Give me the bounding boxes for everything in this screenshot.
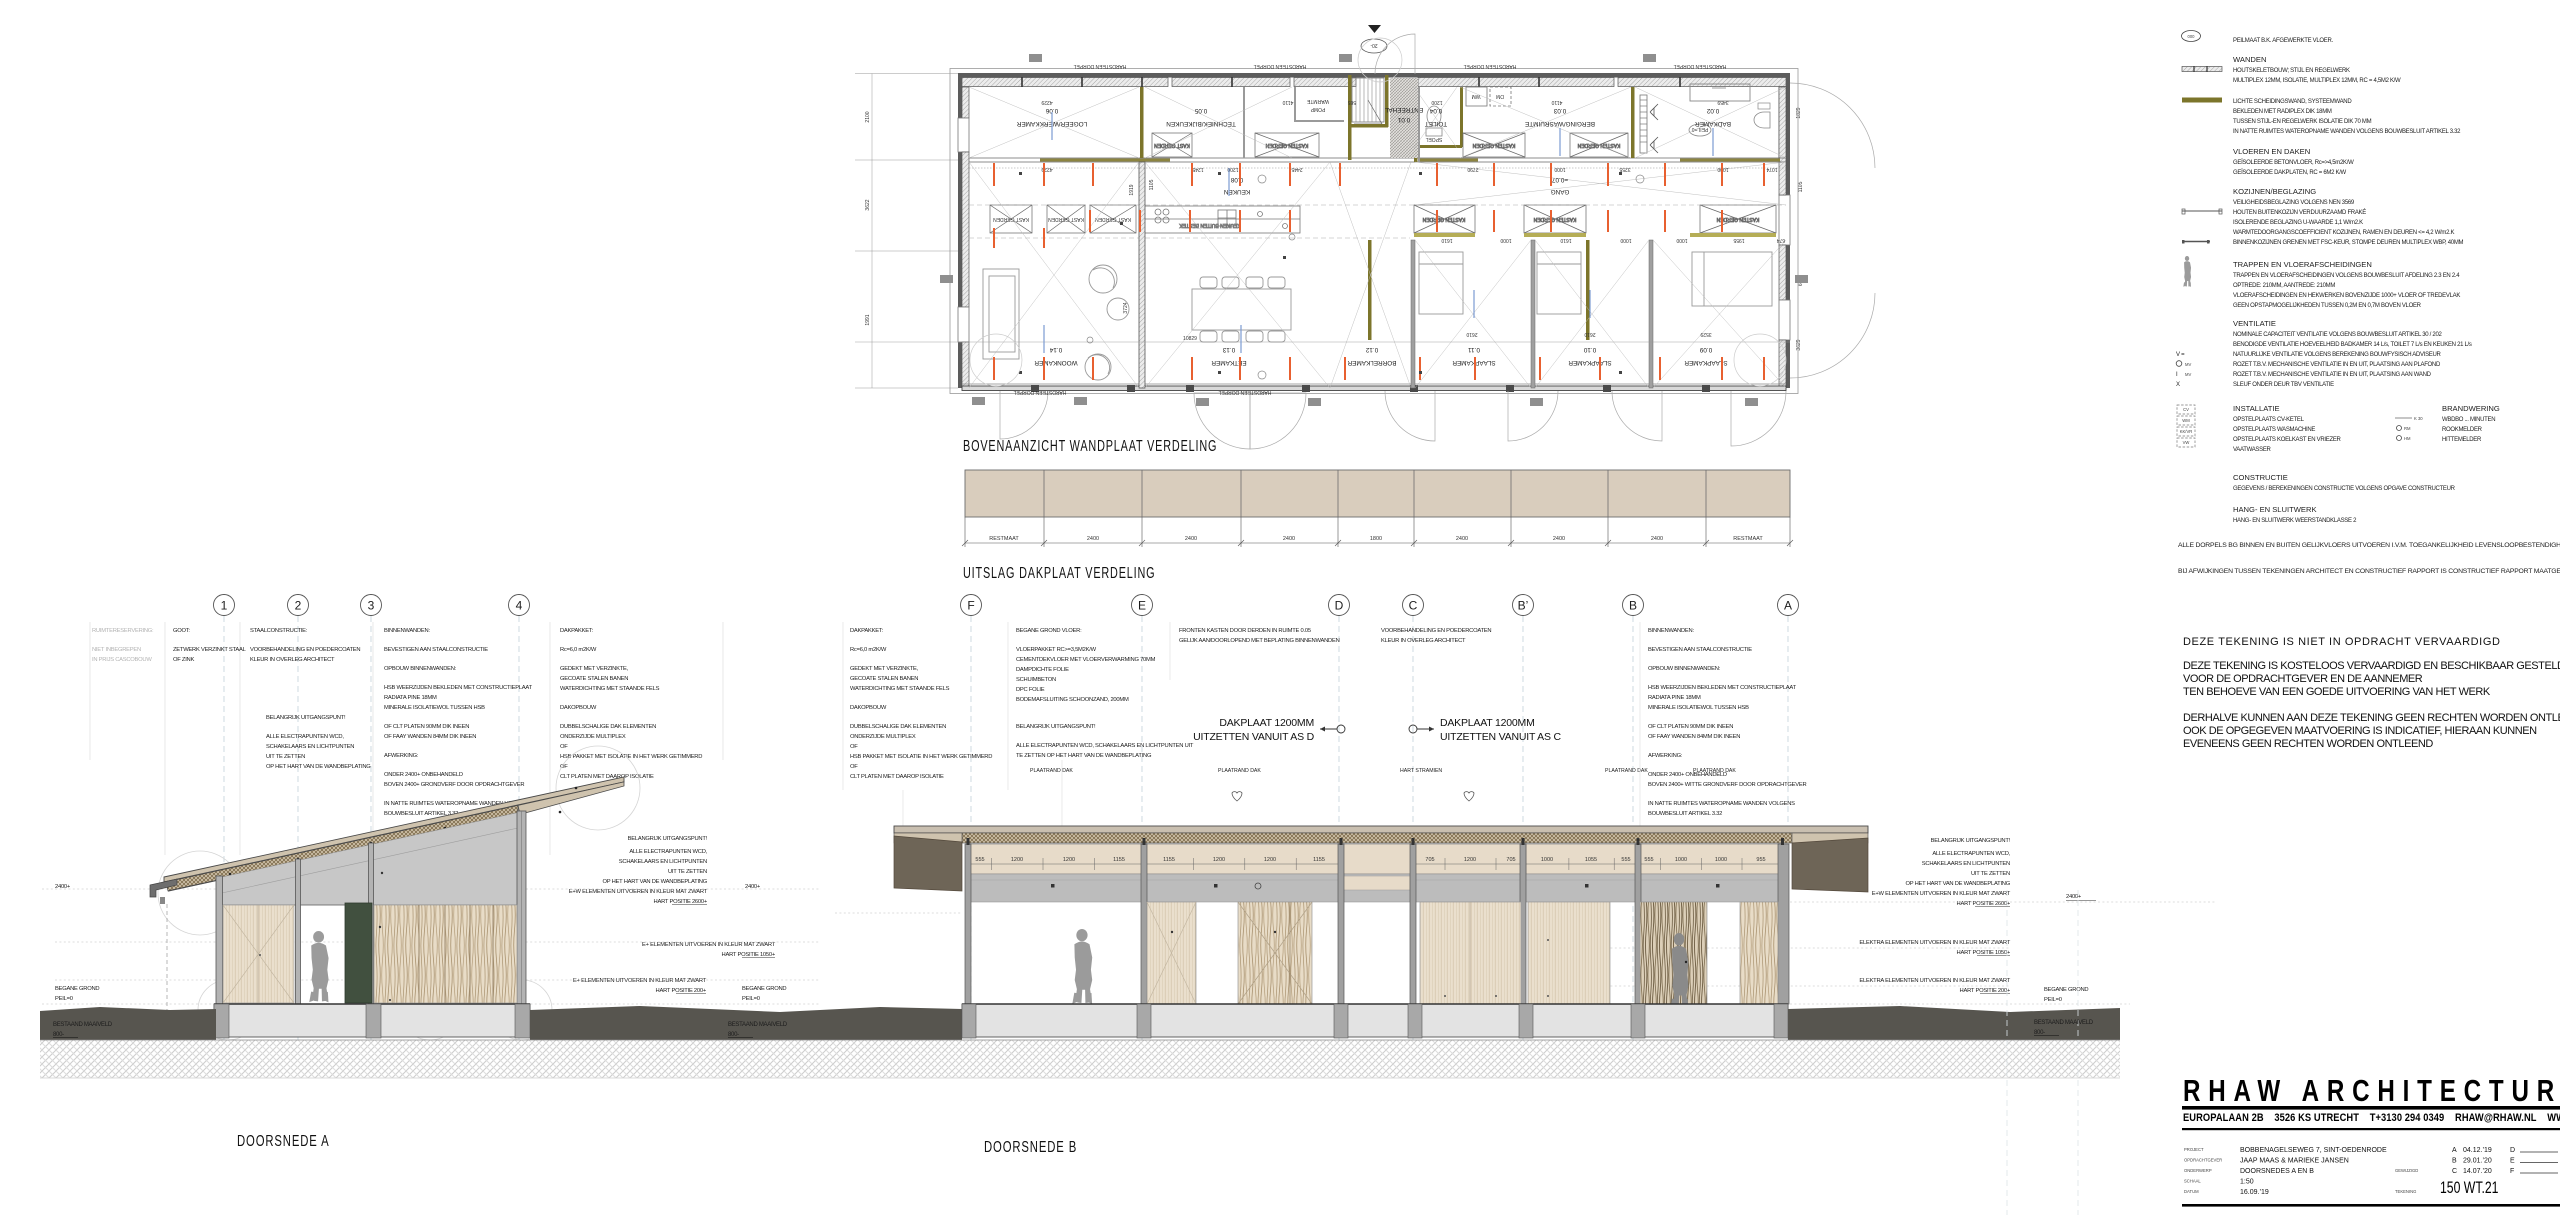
svg-text:GEGEVENS / BEREKENINGEN CONSTR: GEGEVENS / BEREKENINGEN CONSTRUCTIE VOLG…	[2233, 486, 2456, 492]
svg-text:GANG: GANG	[1551, 188, 1570, 195]
svg-text:OPTREDE: 210MM, AANTREDE: 210M: OPTREDE: 210MM, AANTREDE: 210MM	[2233, 283, 2335, 289]
svg-text:DPC FOLIE: DPC FOLIE	[1016, 687, 1045, 693]
svg-text:DUBBELSCHALIGE DAK ELEMENTEN: DUBBELSCHALIGE DAK ELEMENTEN	[560, 724, 656, 730]
svg-text:EUROPALAAN 2B 3526 KS UTREC: EUROPALAAN 2B 3526 KS UTRECHT T+3130 294…	[2183, 1113, 2560, 1125]
svg-text:0.05: 0.05	[1194, 107, 1207, 114]
svg-text:1200: 1200	[1063, 857, 1075, 863]
svg-text:04.12.’19: 04.12.’19	[2463, 1147, 2492, 1154]
svg-text:VW: VW	[2183, 440, 2190, 445]
svg-text:BORRELKAMER: BORRELKAMER	[1347, 359, 1396, 366]
svg-text:705: 705	[1425, 857, 1434, 863]
svg-text:2: 2	[295, 599, 302, 613]
svg-text:CEMENTDEKVLOER MET VLOERVERWAR: CEMENTDEKVLOER MET VLOERVERWARMING 70MM	[1016, 657, 1156, 663]
svg-text:HOUTSKELETBOUW; STIJL EN REGEL: HOUTSKELETBOUW; STIJL EN REGELWERK	[2233, 68, 2350, 74]
svg-text:2400: 2400	[1651, 536, 1663, 542]
svg-text:OP HET HART VAN DE WANDBEPLATI: OP HET HART VAN DE WANDBEPLATING	[1905, 881, 2010, 887]
svg-text:BEVESTIGEN AAN STAALCONSTRUCTI: BEVESTIGEN AAN STAALCONSTRUCTIE	[384, 647, 488, 653]
svg-text:16.09.’19: 16.09.’19	[2240, 1189, 2269, 1196]
svg-text:1155: 1155	[1313, 857, 1325, 863]
svg-text:1000: 1000	[1554, 166, 1565, 172]
svg-text:BELANGRIJK UITGANGSPUNT!: BELANGRIJK UITGANGSPUNT!	[628, 836, 708, 842]
svg-text:OF: OF	[850, 744, 858, 750]
svg-text:0.04: 0.04	[1429, 107, 1442, 114]
svg-text:OF ZINK: OF ZINK	[173, 657, 194, 663]
svg-text:PEIL=0: PEIL=0	[742, 996, 760, 1002]
svg-text:X: X	[2176, 382, 2180, 388]
svg-text:4110: 4110	[1282, 99, 1293, 105]
svg-text:DM: DM	[1496, 93, 1504, 99]
svg-text:20-: 20-	[1370, 42, 1378, 48]
svg-text:SLEUF ONDER DEUR TBV VENTILATI: SLEUF ONDER DEUR TBV VENTILATIE	[2233, 382, 2334, 388]
svg-text:2400: 2400	[1283, 536, 1295, 542]
svg-text:0.11: 0.11	[1468, 346, 1480, 353]
svg-text:HSB PAKKET MET ISOLATIE IN HET: HSB PAKKET MET ISOLATIE IN HET WERK GETI…	[560, 754, 702, 760]
svg-text:BEGANE GROND: BEGANE GROND	[742, 986, 786, 992]
svg-text:OF CLT PLATEN 90MM DIK INEEN: OF CLT PLATEN 90MM DIK INEEN	[1648, 724, 1733, 730]
svg-text:BINNENKOZIJNEN GRENEN MET FSC-: BINNENKOZIJNEN GRENEN MET FSC-KEUR, STOM…	[2233, 240, 2464, 246]
svg-text:OF: OF	[850, 764, 858, 770]
svg-text:BINNENWANDEN:: BINNENWANDEN:	[1648, 628, 1694, 634]
svg-text:4229: 4229	[1041, 166, 1052, 172]
svg-text:FRONTEN KASTEN DOOR DERDEN IN: FRONTEN KASTEN DOOR DERDEN IN RUIMTE 0.0…	[1179, 628, 1311, 634]
svg-text:BENODIGDE VENTILATIE HOEVEELHE: BENODIGDE VENTILATIE HOEVEELHEID BADKAME…	[2233, 342, 2472, 348]
svg-text:BELANGRIJK UITGANGSPUNT!: BELANGRIJK UITGANGSPUNT!	[1016, 724, 1096, 730]
svg-text:1000: 1000	[1620, 237, 1631, 243]
svg-text:DAKPAKKET:: DAKPAKKET:	[850, 628, 883, 634]
svg-text:WOONKAMER: WOONKAMER	[1034, 359, 1078, 366]
svg-text:SLAAPKAMER: SLAAPKAMER	[1452, 359, 1496, 366]
svg-text:1800: 1800	[1370, 536, 1382, 542]
svg-text:TECHNIEK/BIJKEUKEN: TECHNIEK/BIJKEUKEN	[1166, 120, 1236, 127]
svg-text:ALLE DORPELS BG BINNEN EN BUIT: ALLE DORPELS BG BINNEN EN BUITEN GELIJKV…	[2178, 542, 2560, 549]
svg-text:1200: 1200	[1431, 99, 1442, 105]
svg-text:RHAW ARCHITECTURE: RHAW ARCHITECTURE	[2183, 1073, 2560, 1108]
svg-text:3629: 3629	[1796, 339, 1802, 350]
svg-text:BINNENWANDEN:: BINNENWANDEN:	[384, 628, 430, 634]
svg-text:DAKPLAAT 1200MM: DAKPLAAT 1200MM	[1219, 717, 1314, 729]
svg-text:NIET INBEGREPEN: NIET INBEGREPEN	[92, 647, 141, 653]
svg-text:VOORBEHANDELING EN POEDERCOATE: VOORBEHANDELING EN POEDERCOATEN	[1381, 628, 1491, 634]
svg-text:BERGING/WASRUIMTE: BERGING/WASRUIMTE	[1525, 120, 1595, 127]
svg-text:3255: 3255	[1619, 166, 1630, 172]
svg-text:TUSSEN STIJL-EN REGELWERK ISOL: TUSSEN STIJL-EN REGELWERK ISOLATIE DIK 7…	[2233, 119, 2372, 125]
svg-text:BESTAAND MAAIVELD: BESTAAND MAAIVELD	[2034, 1020, 2094, 1026]
svg-text:1919: 1919	[1129, 184, 1135, 195]
svg-text:BOVEN 2400+ WITTE GRONDVERF DO: BOVEN 2400+ WITTE GRONDVERF DOOR OPDRACH…	[1648, 782, 1806, 788]
svg-text:RADIATA PINE 18MM: RADIATA PINE 18MM	[384, 695, 437, 701]
svg-text:MINERALE ISOLATIEWOL TUSSEN HS: MINERALE ISOLATIEWOL TUSSEN HSB	[384, 705, 485, 711]
svg-text:BOUWBESLUIT ARTIKEL 3.32: BOUWBESLUIT ARTIKEL 3.32	[1648, 811, 1722, 817]
svg-text:CV: CV	[2183, 407, 2189, 412]
svg-text:RESTMAAT: RESTMAAT	[989, 536, 1019, 542]
svg-text:F: F	[2510, 1168, 2514, 1175]
svg-text:CLT PLATEN MET DAAROP ISOLATIE: CLT PLATEN MET DAAROP ISOLATIE	[850, 774, 944, 780]
svg-text:WATERDICHTING MET STAANDE FELS: WATERDICHTING MET STAANDE FELS	[850, 686, 950, 692]
svg-text:1000: 1000	[1541, 857, 1553, 863]
svg-text:1000: 1000	[1676, 237, 1687, 243]
svg-text:WARMTE: WARMTE	[1306, 98, 1329, 104]
svg-text:OP HET HART VAN DE WANDBEPLATI: OP HET HART VAN DE WANDBEPLATING	[266, 764, 371, 770]
svg-text:705: 705	[1506, 857, 1515, 863]
svg-text:DOORSNEDES A EN B: DOORSNEDES A EN B	[2240, 1168, 2314, 1175]
svg-text:BODEMAFSLUITING SCHOONZAND, 20: BODEMAFSLUITING SCHOONZAND, 200MM	[1016, 697, 1129, 703]
svg-text:HARDSTEEN DORPEL: HARDSTEEN DORPEL	[1253, 63, 1306, 69]
svg-text:IN NATTE RUIMTES WATEROPNAME W: IN NATTE RUIMTES WATEROPNAME WANDEN VOLG…	[2233, 129, 2461, 135]
svg-text:2400: 2400	[1553, 536, 1565, 542]
svg-text:TEN BEHOEVE VAN EEN GOEDE UITV: TEN BEHOEVE VAN EEN GOEDE UITVOERING VAN…	[2183, 686, 2491, 698]
svg-text:0.01: 0.01	[1397, 116, 1410, 123]
svg-text:3622: 3622	[865, 199, 871, 210]
svg-text:DAKOPBOUW: DAKOPBOUW	[850, 705, 887, 711]
svg-text:KASTEN GERDEN: KASTEN GERDEN	[1577, 142, 1620, 148]
svg-text:10829: 10829	[1183, 336, 1197, 342]
svg-text:C: C	[1409, 599, 1418, 613]
svg-text:HART POSITIE 2600+: HART POSITIE 2600+	[654, 899, 708, 905]
svg-text:KLEUR IN OVERLEG ARCHITECT: KLEUR IN OVERLEG ARCHITECT	[250, 657, 335, 663]
svg-text:0.12: 0.12	[1365, 346, 1378, 353]
svg-text:BOBBENAGELSEWEG 7, SINT-OEDENR: BOBBENAGELSEWEG 7, SINT-OEDENRODE	[2240, 1147, 2387, 1154]
svg-text:BEVESTIGEN AAN STAALCONSTRUCTI: BEVESTIGEN AAN STAALCONSTRUCTIE	[1648, 647, 1752, 653]
svg-text:E: E	[1138, 599, 1146, 613]
svg-text:UITZETTEN VANUIT AS C: UITZETTEN VANUIT AS C	[1440, 731, 1561, 743]
svg-text:WARMTEDOORGANGSCOEFFICIENT KOZ: WARMTEDOORGANGSCOEFFICIENT KOZIJNEN, RAM…	[2233, 230, 2455, 236]
svg-text:800-: 800-	[53, 1032, 64, 1038]
svg-text:800-: 800-	[728, 1032, 739, 1038]
svg-text:TOILET: TOILET	[1425, 120, 1447, 127]
svg-text:SCHAKELAARS EN LICHTPUNTEN: SCHAKELAARS EN LICHTPUNTEN	[266, 744, 354, 750]
svg-text:DAKPLAAT 1200MM: DAKPLAAT 1200MM	[1440, 717, 1535, 729]
svg-text:4: 4	[516, 599, 523, 613]
svg-text:GEDEKT MET VERZINKTE,: GEDEKT MET VERZINKTE,	[850, 666, 919, 672]
svg-text:BELANGRIJK UITGANGSPUNT!: BELANGRIJK UITGANGSPUNT!	[1931, 838, 2011, 844]
svg-text:GECOATE STALEN BANEN: GECOATE STALEN BANEN	[560, 676, 628, 682]
svg-text:F: F	[967, 599, 974, 613]
svg-text:DAKOPBOUW: DAKOPBOUW	[560, 705, 597, 711]
svg-text:PLAATRAND DAK: PLAATRAND DAK	[1693, 768, 1736, 774]
svg-text:UITSLAG DAKPLAAT VERDELING: UITSLAG DAKPLAAT VERDELING	[963, 564, 1155, 581]
svg-text:JAAP MAAS & MARIEKE JANSEN: JAAP MAAS & MARIEKE JANSEN	[2240, 1158, 2349, 1165]
svg-text:VEILIGHEIDSBEGLAZING VOLGENS N: VEILIGHEIDSBEGLAZING VOLGENS NEN 3569	[2233, 200, 2355, 206]
svg-text:BESTAAND MAAIVELD: BESTAAND MAAIVELD	[53, 1022, 113, 1028]
svg-text:WBDBO ... MINUTEN: WBDBO ... MINUTEN	[2442, 417, 2495, 423]
svg-text:BEGANE GROND: BEGANE GROND	[2044, 987, 2088, 993]
svg-text:ONDERZIJDE MULTIPLEX: ONDERZIJDE MULTIPLEX	[560, 734, 626, 740]
svg-text:V =: V =	[2176, 352, 2185, 358]
svg-text:OPSTELPLAATS WASMACHINE: OPSTELPLAATS WASMACHINE	[2233, 427, 2315, 433]
svg-text:2790: 2790	[1467, 166, 1478, 172]
svg-text:OF: OF	[560, 744, 568, 750]
svg-text:DEZE TEKENING IS NIET IN OPDRA: DEZE TEKENING IS NIET IN OPDRACHT VERVAA…	[2183, 636, 2501, 648]
svg-text:DEZE TEKENING IS KOSTELOOS VER: DEZE TEKENING IS KOSTELOOS VERVAARDIGD E…	[2183, 660, 2560, 672]
svg-text:ZETWERK VERZINKT STAAL: ZETWERK VERZINKT STAAL	[173, 647, 247, 653]
svg-text:0.02: 0.02	[1706, 107, 1719, 114]
svg-text:1105: 1105	[1149, 179, 1155, 190]
svg-text:KASTEN GERDEN: KASTEN GERDEN	[1533, 216, 1576, 222]
svg-text:1000: 1000	[1675, 857, 1687, 863]
svg-text:TEKENING: TEKENING	[2395, 1189, 2416, 1194]
svg-text:0.09: 0.09	[1699, 346, 1712, 353]
svg-text:BEKLEDEN MET RADIPLEX DIK 18MM: BEKLEDEN MET RADIPLEX DIK 18MM	[2233, 109, 2332, 115]
svg-text:K 30: K 30	[2414, 416, 2423, 421]
svg-text:ROOKMELDER: ROOKMELDER	[2442, 427, 2483, 433]
svg-text:OF FAAY WANDEN 84MM DIK INEEN: OF FAAY WANDEN 84MM DIK INEEN	[1648, 734, 1740, 740]
svg-text:KASTEN GERDEN: KASTEN GERDEN	[1472, 142, 1515, 148]
svg-text:GEEN OPSTAPMOGELIJKHEDEN TUSSE: GEEN OPSTAPMOGELIJKHEDEN TUSSEN 0,2M EN …	[2233, 303, 2422, 309]
svg-text:3529: 3529	[1700, 331, 1711, 337]
svg-text:HART POSITIE 200+: HART POSITIE 200+	[1960, 988, 2011, 994]
svg-text:ONDERWERP: ONDERWERP	[2184, 1168, 2212, 1173]
svg-text:HART POSITIE 1050+: HART POSITIE 1050+	[722, 952, 776, 958]
svg-text:LICHTE SCHEIDINGSWAND, SYSTEEM: LICHTE SCHEIDINGSWAND, SYSTEEMWAND	[2233, 99, 2352, 105]
svg-text:E+W ELEMENTEN UITVOEREN IN KLE: E+W ELEMENTEN UITVOEREN IN KLEUR MAT ZWA…	[1872, 891, 2011, 897]
svg-text:KLEUR IN OVERLEG ARCHITECT: KLEUR IN OVERLEG ARCHITECT	[1381, 638, 1466, 644]
svg-text:1055: 1055	[1585, 857, 1597, 863]
svg-text:OPBOUW BINNENWANDEN:: OPBOUW BINNENWANDEN:	[384, 666, 457, 672]
svg-text:TRAPPEN EN VLOERAFSCHEIDINGEN: TRAPPEN EN VLOERAFSCHEIDINGEN VOLGENS BO…	[2233, 273, 2460, 279]
svg-text:HART POSITIE 200+: HART POSITIE 200+	[656, 988, 707, 994]
svg-text:WM: WM	[2182, 418, 2190, 423]
svg-text:HSB PAKKET MET ISOLATIE IN HET: HSB PAKKET MET ISOLATIE IN HET WERK GETI…	[850, 754, 992, 760]
svg-text:DOORSNEDE B: DOORSNEDE B	[984, 1138, 1077, 1155]
svg-text:EETKAMER: EETKAMER	[1211, 359, 1247, 366]
svg-text:1: 1	[221, 599, 228, 613]
svg-text:KOZIJNEN/BEGLAZING: KOZIJNEN/BEGLAZING	[2233, 187, 2316, 196]
svg-text:BELANGRIJK UITGANGSPUNT!: BELANGRIJK UITGANGSPUNT!	[266, 715, 346, 721]
svg-text:HM: HM	[2404, 436, 2411, 441]
svg-text:HANG- EN SLUITWERK WEERSTANDKL: HANG- EN SLUITWERK WEERSTANDKLASSE 2	[2233, 518, 2357, 524]
svg-text:HARDSTEEN DORPEL: HARDSTEEN DORPEL	[1218, 389, 1271, 395]
svg-text:RUIMTERESERVERING:: RUIMTERESERVERING:	[92, 628, 154, 634]
svg-text:HARDSTEEN DORPEL: HARDSTEEN DORPEL	[1013, 389, 1066, 395]
svg-text:ONDER 2400+ ONBEHANDELD: ONDER 2400+ ONBEHANDELD	[384, 772, 463, 778]
svg-text:ELEKTRA ELEMENTEN UITVOEREN IN: ELEKTRA ELEMENTEN UITVOEREN IN KLEUR MAT…	[1859, 940, 2010, 946]
svg-text:1074: 1074	[1766, 166, 1777, 172]
svg-text:Rc=6,0 m2K/W: Rc=6,0 m2K/W	[850, 647, 887, 653]
svg-text:MV: MV	[2185, 372, 2191, 377]
svg-text:ONDERZIJDE MULTIPLEX: ONDERZIJDE MULTIPLEX	[850, 734, 916, 740]
svg-text:0.13: 0.13	[1222, 346, 1235, 353]
svg-text:OPDRACHTGEVER: OPDRACHTGEVER	[2184, 1158, 2222, 1163]
svg-text:PLAATRAND DAK: PLAATRAND DAK	[1030, 768, 1073, 774]
svg-text:KAST GERDEN: KAST GERDEN	[1048, 216, 1084, 222]
svg-text:IN NATTE RUIMTES WATEROPNAME W: IN NATTE RUIMTES WATEROPNAME WANDEN VOLG…	[1648, 801, 1795, 807]
svg-text:UIT TE ZETTEN: UIT TE ZETTEN	[668, 869, 707, 875]
svg-text:PEILMAAT B.K. AFGEWERKTE VLOER: PEILMAAT B.K. AFGEWERKTE VLOER.	[2233, 38, 2333, 44]
svg-text:565: 565	[1348, 99, 1357, 105]
svg-text:1955: 1955	[1733, 237, 1744, 243]
svg-text:STAALCONSTRUCTIE:: STAALCONSTRUCTIE:	[250, 628, 308, 634]
svg-text:2100: 2100	[865, 111, 871, 122]
svg-text:PLAATRAND DAK: PLAATRAND DAK	[1218, 768, 1261, 774]
svg-text:150 WT.21: 150 WT.21	[2440, 1179, 2498, 1197]
svg-text:1610: 1610	[1441, 237, 1452, 243]
svg-text:OOK DE OPGEGEVEN MAATVOERING I: OOK DE OPGEGEVEN MAATVOERING IS INDICATI…	[2183, 725, 2537, 737]
svg-text:MV: MV	[2185, 362, 2191, 367]
svg-text:MINERALE ISOLATIEWOL TUSSEN HS: MINERALE ISOLATIEWOL TUSSEN HSB	[1648, 705, 1749, 711]
svg-text:4110: 4110	[1551, 99, 1562, 105]
svg-text:KAST GERDEN: KAST GERDEN	[1095, 216, 1131, 222]
svg-text:ALLE ELECTRAPUNTEN WCD,: ALLE ELECTRAPUNTEN WCD,	[629, 849, 707, 855]
svg-text:A: A	[2452, 1147, 2457, 1154]
svg-text:OP HET HART VAN DE WANDBEPLATI: OP HET HART VAN DE WANDBEPLATING	[602, 879, 707, 885]
svg-text:0.08: 0.08	[1230, 176, 1243, 183]
svg-text:DUBBELSCHALIGE DAK ELEMENTEN: DUBBELSCHALIGE DAK ELEMENTEN	[850, 724, 946, 730]
svg-text:VAATWASSER: VAATWASSER	[2233, 447, 2272, 453]
svg-text:B’: B’	[1518, 599, 1529, 613]
svg-text:0.03: 0.03	[1553, 107, 1566, 114]
svg-text:TE ZETTEN OP HET HART VAN DE W: TE ZETTEN OP HET HART VAN DE WANDBEPLATI…	[1016, 753, 1152, 759]
svg-text:HANG- EN SLUITWERK: HANG- EN SLUITWERK	[2233, 505, 2317, 514]
svg-text:000: 000	[2188, 34, 2196, 39]
svg-text:1000: 1000	[1500, 237, 1511, 243]
svg-text:GECOATE STALEN BANEN: GECOATE STALEN BANEN	[850, 676, 918, 682]
svg-text:KK/VR: KK/VR	[2180, 429, 2193, 434]
svg-text:1155: 1155	[1163, 857, 1175, 863]
svg-text:D: D	[1335, 599, 1344, 613]
svg-text:674: 674	[1777, 237, 1786, 243]
svg-text:1200: 1200	[1464, 857, 1476, 863]
svg-text:HARDSTEEN DORPEL: HARDSTEEN DORPEL	[1463, 63, 1516, 69]
svg-text:SPOEL: SPOEL	[1425, 136, 1442, 142]
svg-text:HOUTEN BUITENKOZIJN VERDUURZAA: HOUTEN BUITENKOZIJN VERDUURZAAMD FRAKÉ	[2233, 209, 2366, 216]
svg-text:GELIJK AAN/DOORLOPEND MET BEPL: GELIJK AAN/DOORLOPEND MET BEPLATING BINN…	[1179, 638, 1340, 644]
svg-text:HARDSTEEN DORPEL: HARDSTEEN DORPEL	[1073, 63, 1126, 69]
svg-text:RM: RM	[2404, 426, 2411, 431]
svg-text:CONSTRUCTIE: CONSTRUCTIE	[2233, 473, 2288, 482]
svg-text:VLOERPAKKET RC>=3,5M2K/W: VLOERPAKKET RC>=3,5M2K/W	[1016, 647, 1097, 653]
svg-text:BADKAMER: BADKAMER	[1695, 120, 1731, 127]
svg-text:1:50: 1:50	[2240, 1179, 2254, 1186]
svg-text:SLAAPKAMER: SLAAPKAMER	[1568, 359, 1612, 366]
svg-text:ISOLERENDE BEGLAZING U-WAARDE: ISOLERENDE BEGLAZING U-WAARDE 1,1 W/m2.K	[2233, 220, 2363, 226]
svg-text:UIT TE ZETTEN: UIT TE ZETTEN	[1971, 871, 2010, 877]
svg-text:14.07.’20: 14.07.’20	[2463, 1168, 2492, 1175]
svg-text:HART POSITIE 1050+: HART POSITIE 1050+	[1957, 950, 2011, 956]
svg-text:OPSTELPLAATS KOELKAST EN VRIEZ: OPSTELPLAATS KOELKAST EN VRIEZER	[2233, 437, 2342, 443]
svg-text:ROZET T.B.V. MECHANISCHE VENTI: ROZET T.B.V. MECHANISCHE VENTILATIE IN E…	[2233, 362, 2441, 368]
svg-text:GEÏSOLEERDE DAKPLATEN, RC = 6M: GEÏSOLEERDE DAKPLATEN, RC = 6M2 K/W	[2233, 169, 2347, 176]
svg-text:B: B	[2452, 1158, 2457, 1165]
svg-text:1991: 1991	[865, 314, 871, 325]
svg-text:WANDEN: WANDEN	[2233, 55, 2266, 64]
svg-text:2400: 2400	[1087, 536, 1099, 542]
svg-text:1245: 1245	[1192, 166, 1203, 172]
svg-text:2400: 2400	[1456, 536, 1468, 542]
svg-text:BRANDWERING: BRANDWERING	[2442, 404, 2500, 413]
svg-text:UIT TE ZETTEN: UIT TE ZETTEN	[266, 754, 305, 760]
svg-text:GOOT:: GOOT:	[173, 628, 190, 634]
svg-text:WM: WM	[1472, 93, 1481, 99]
svg-text:VOORBEHANDELING EN POEDERCOATE: VOORBEHANDELING EN POEDERCOATEN	[250, 647, 360, 653]
svg-text:PEIL=0: PEIL=0	[55, 996, 73, 1002]
svg-text:BEGANE GROND: BEGANE GROND	[55, 986, 99, 992]
svg-text:3459: 3459	[1717, 99, 1728, 105]
svg-text:2610: 2610	[1466, 331, 1477, 337]
svg-text:SCHUIMBETON: SCHUIMBETON	[1016, 677, 1056, 683]
svg-text:HSB WEERZIJDEN BEKLEDEN MET CO: HSB WEERZIJDEN BEKLEDEN MET CONSTRUCTIEP…	[1648, 685, 1797, 691]
svg-text:29.01.’20: 29.01.’20	[2463, 1158, 2492, 1165]
svg-text:POMP: POMP	[1310, 106, 1325, 112]
svg-text:SCHAKELAARS EN LICHTPUNTEN: SCHAKELAARS EN LICHTPUNTEN	[619, 859, 707, 865]
svg-text:GEDEKT MET VERZINKTE,: GEDEKT MET VERZINKTE,	[560, 666, 629, 672]
svg-text:1200: 1200	[1011, 857, 1023, 863]
svg-text:E+ ELEMENTEN UITVOEREN IN KLEU: E+ ELEMENTEN UITVOEREN IN KLEUR MAT ZWAR…	[642, 942, 776, 948]
svg-text:E+ ELEMENTEN UITVOEREN IN KLEU: E+ ELEMENTEN UITVOEREN IN KLEUR MAT ZWAR…	[573, 978, 707, 984]
svg-text:ROZET T.B.V. MECHANISCHE VENTI: ROZET T.B.V. MECHANISCHE VENTILATIE IN E…	[2233, 372, 2432, 378]
svg-text:C: C	[2452, 1168, 2457, 1175]
svg-text:4229: 4229	[1041, 99, 1052, 105]
svg-text:KASTEN GERDEN: KASTEN GERDEN	[1265, 142, 1308, 148]
svg-text:DAKPAKKET:: DAKPAKKET:	[560, 628, 593, 634]
svg-text:ALLE ELECTRAPUNTEN WCD,: ALLE ELECTRAPUNTEN WCD,	[266, 734, 344, 740]
svg-text:2400: 2400	[1185, 536, 1197, 542]
svg-text:ENTREEHAL: ENTREEHAL	[1384, 106, 1423, 113]
svg-text:GEWIJZIGD: GEWIJZIGD	[2395, 1168, 2418, 1173]
svg-text:DAMPDICHTE FOLIE: DAMPDICHTE FOLIE	[1016, 667, 1069, 673]
svg-text:ELEKTRA ELEMENTEN UITVOEREN IN: ELEKTRA ELEMENTEN UITVOEREN IN KLEUR MAT…	[1859, 978, 2010, 984]
svg-text:=0.07: =0.07	[1551, 176, 1568, 183]
svg-text:KEUKEN BUITEN BESTEK: KEUKEN BUITEN BESTEK	[1179, 222, 1241, 228]
svg-text:HART STRAMIEN: HART STRAMIEN	[1400, 768, 1442, 774]
svg-text:3724: 3724	[1123, 302, 1129, 313]
svg-text:BEGANE GROND VLOER:: BEGANE GROND VLOER:	[1016, 628, 1082, 634]
svg-text:0.10: 0.10	[1583, 346, 1596, 353]
svg-text:555: 555	[1644, 857, 1653, 863]
svg-text:BIJ AFWIJKINGEN TUSSEN TEKENIN: BIJ AFWIJKINGEN TUSSEN TEKENINGEN ARCHIT…	[2178, 568, 2560, 575]
svg-text:2445: 2445	[1291, 166, 1302, 172]
svg-text:DERHALVE KUNNEN AAN DEZE TEKEN: DERHALVE KUNNEN AAN DEZE TEKENING GEEN R…	[2183, 712, 2560, 724]
svg-text:OPSTELPLAATS CV-KETEL: OPSTELPLAATS CV-KETEL	[2233, 417, 2305, 423]
svg-text:BOVEN 2400+ GRONDVERF DOOR OPD: BOVEN 2400+ GRONDVERF DOOR OPDRACHTGEVER	[384, 782, 524, 788]
svg-text:EVENEENS GEEN RECHTEN WORDEN O: EVENEENS GEEN RECHTEN WORDEN ONTLEEND	[2183, 738, 2433, 750]
svg-text:1000: 1000	[1715, 857, 1727, 863]
svg-text:OF CLT PLATEN 90MM DIK INEEN: OF CLT PLATEN 90MM DIK INEEN	[384, 724, 469, 730]
svg-text:KAST GERDEN: KAST GERDEN	[993, 216, 1029, 222]
svg-text:2610: 2610	[1584, 331, 1595, 337]
svg-text:WATERDICHTING MET STAANDE FELS: WATERDICHTING MET STAANDE FELS	[560, 686, 660, 692]
svg-text:1610: 1610	[1560, 237, 1571, 243]
svg-text:B: B	[1629, 599, 1637, 613]
svg-text:AFWERKING:: AFWERKING:	[1648, 753, 1683, 759]
svg-text:ALLE ELECTRAPUNTEN WCD,: ALLE ELECTRAPUNTEN WCD,	[1932, 851, 2010, 857]
svg-text:AFWERKING:: AFWERKING:	[384, 753, 419, 759]
svg-text:OPBOUW BINNENWANDEN:: OPBOUW BINNENWANDEN:	[1648, 666, 1721, 672]
svg-text:DATUM: DATUM	[2184, 1189, 2199, 1194]
svg-text:VENTILATIE: VENTILATIE	[2233, 319, 2276, 328]
svg-text:RADIATA PINE 18MM: RADIATA PINE 18MM	[1648, 695, 1701, 701]
svg-text:A: A	[1784, 599, 1792, 613]
svg-text:PEIL=0: PEIL=0	[2044, 997, 2062, 1003]
svg-text:2400+: 2400+	[2066, 894, 2082, 900]
svg-text:KEUKEN: KEUKEN	[1223, 188, 1250, 195]
svg-text:HARDSTEEN DORPEL: HARDSTEEN DORPEL	[1673, 63, 1726, 69]
svg-text:OF FAAY WANDEN 84MM DIK INEEN: OF FAAY WANDEN 84MM DIK INEEN	[384, 734, 476, 740]
svg-text:NATUURLIJKE VENTILATIE VOLGENS: NATUURLIJKE VENTILATIE VOLGENS BEREKENIN…	[2233, 352, 2442, 358]
svg-text:1200: 1200	[1264, 857, 1276, 863]
svg-text:CLT PLATEN MET DAAROP ISOLATIE: CLT PLATEN MET DAAROP ISOLATIE	[560, 774, 654, 780]
svg-text:D: D	[2510, 1147, 2515, 1154]
svg-text:IN PRIJS CASCOBOUW: IN PRIJS CASCOBOUW	[92, 657, 152, 663]
svg-text:VLOERAFSCHEIDINGEN EN HEKWERKE: VLOERAFSCHEIDINGEN EN HEKWERKEN BOVENZIJ…	[2233, 293, 2460, 299]
svg-text:3: 3	[368, 599, 375, 613]
svg-text:HSB WEERZIJDEN BEKLEDEN MET CO: HSB WEERZIJDEN BEKLEDEN MET CONSTRUCTIEP…	[384, 685, 533, 691]
svg-text:1155: 1155	[1113, 857, 1125, 863]
svg-text:BESTAAND MAAIVELD: BESTAAND MAAIVELD	[728, 1022, 788, 1028]
svg-text:E+W ELEMENTEN UITVOEREN IN KLE: E+W ELEMENTEN UITVOEREN IN KLEUR MAT ZWA…	[569, 889, 708, 895]
svg-text:0.14: 0.14	[1049, 346, 1062, 353]
svg-text:1829: 1829	[1796, 107, 1802, 118]
svg-text:800-: 800-	[2034, 1030, 2045, 1036]
